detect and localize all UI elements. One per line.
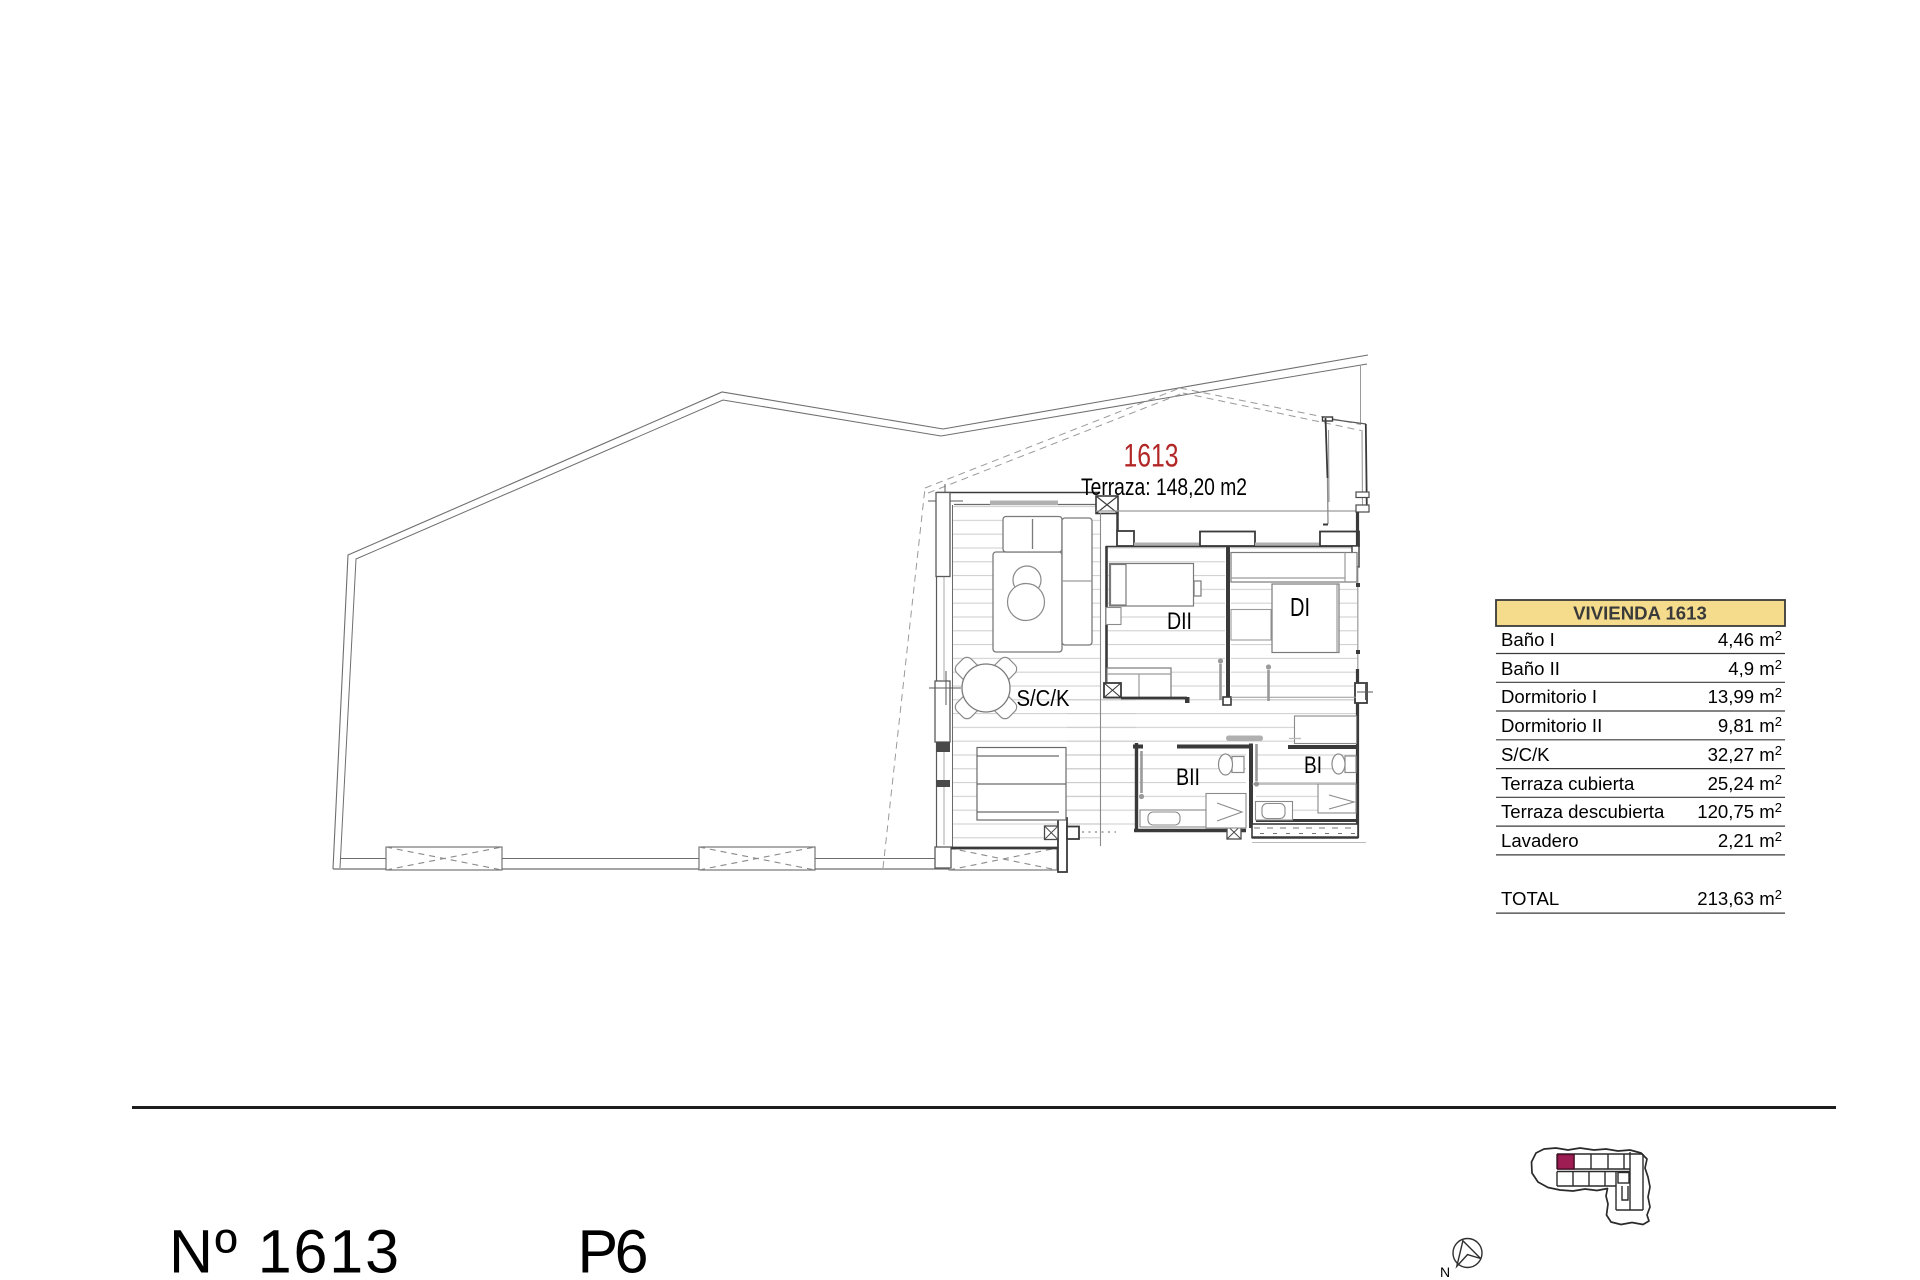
svg-text:Dormitorio I: Dormitorio I (1501, 686, 1597, 707)
svg-text:BII: BII (1176, 764, 1200, 791)
svg-text:1613: 1613 (1124, 438, 1179, 474)
svg-text:Baño I: Baño I (1501, 629, 1555, 650)
svg-text:TOTAL: TOTAL (1501, 888, 1559, 909)
svg-text:13,99 m2: 13,99 m2 (1708, 685, 1782, 707)
svg-text:9,81 m2: 9,81 m2 (1718, 714, 1782, 736)
svg-text:Terraza cubierta: Terraza cubierta (1501, 773, 1635, 794)
svg-text:VIVIENDA 1613: VIVIENDA 1613 (1573, 603, 1707, 624)
svg-text:BI: BI (1304, 752, 1322, 779)
svg-text:Terraza: 148,20 m2: Terraza: 148,20 m2 (1081, 474, 1247, 501)
svg-text:Baño II: Baño II (1501, 658, 1560, 679)
svg-text:S/C/K: S/C/K (1501, 744, 1550, 765)
svg-text:N: N (1440, 1264, 1450, 1280)
svg-text:DI: DI (1290, 592, 1310, 622)
svg-text:213,63 m2: 213,63 m2 (1697, 887, 1782, 909)
svg-text:Nº 1613: Nº 1613 (169, 1218, 399, 1280)
svg-text:S/C/K: S/C/K (1017, 685, 1070, 711)
svg-text:DII: DII (1167, 608, 1192, 635)
svg-text:120,75 m2: 120,75 m2 (1697, 800, 1782, 822)
svg-text:4,9 m2: 4,9 m2 (1728, 657, 1782, 679)
svg-text:P6: P6 (578, 1218, 649, 1280)
svg-text:25,24 m2: 25,24 m2 (1708, 772, 1782, 794)
svg-text:4,46 m2: 4,46 m2 (1718, 628, 1782, 650)
svg-text:2,21 m2: 2,21 m2 (1718, 829, 1782, 851)
svg-text:Dormitorio II: Dormitorio II (1501, 715, 1602, 736)
svg-text:32,27 m2: 32,27 m2 (1708, 743, 1782, 765)
svg-text:Terraza descubierta: Terraza descubierta (1501, 801, 1665, 822)
svg-text:Lavadero: Lavadero (1501, 830, 1579, 851)
